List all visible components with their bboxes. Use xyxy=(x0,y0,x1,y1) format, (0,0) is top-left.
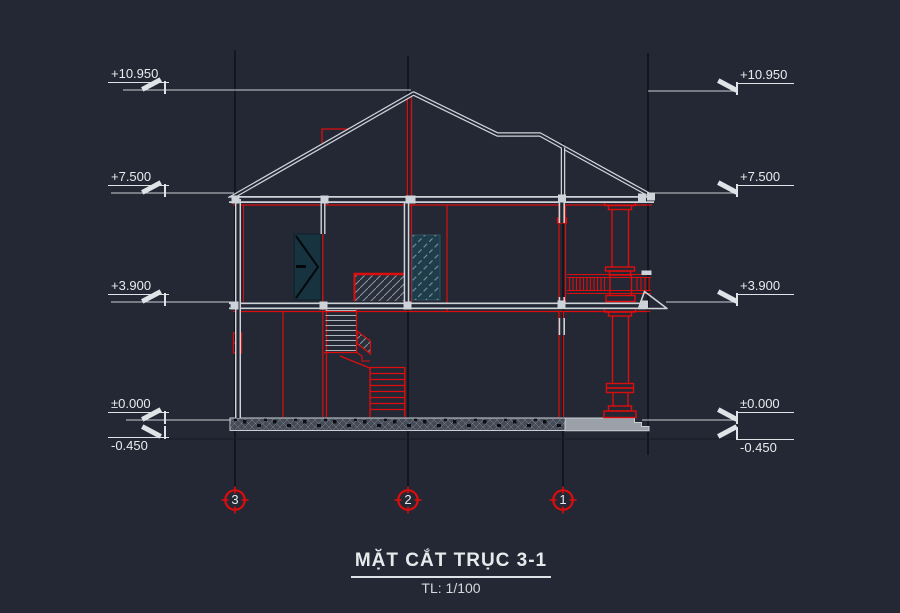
drawing-title: MẶT CẮT TRỤC 3-1 xyxy=(351,550,551,578)
level-tick xyxy=(164,426,166,439)
drawing-scale: TL: 1/100 xyxy=(290,580,612,596)
section-window xyxy=(412,235,440,300)
elevation-marker-right-10950: +10.950 xyxy=(737,67,794,84)
axis-bubble-1: 1 xyxy=(552,489,574,511)
elevation-marker-left-m0450: -0.450 xyxy=(108,437,169,454)
section-drawing-svg xyxy=(0,0,900,613)
cad-canvas[interactable]: +10.950 +7.500 +3.900 ±0.000 -0.450 +10.… xyxy=(0,0,900,613)
axis-bubble-3: 3 xyxy=(224,489,246,511)
section-door xyxy=(294,234,321,300)
axis-bubble-2: 2 xyxy=(397,489,419,511)
level-tick xyxy=(164,411,166,424)
title-block: MẶT CẮT TRỤC 3-1 TL: 1/100 xyxy=(290,550,612,596)
staircase xyxy=(324,274,406,417)
elevation-marker-right-0000: ±0.000 xyxy=(737,396,794,413)
level-tick xyxy=(164,184,166,197)
ground-slab xyxy=(230,418,649,431)
level-tick xyxy=(164,293,166,306)
elevation-marker-right-7500: +7.500 xyxy=(737,169,794,186)
level-tick xyxy=(164,81,166,94)
balcony-railing xyxy=(567,275,651,294)
elevation-marker-right-3900: +3.900 xyxy=(737,278,794,295)
elevation-marker-right-m0450: -0.450 xyxy=(737,439,794,456)
decorative-column xyxy=(604,202,636,418)
